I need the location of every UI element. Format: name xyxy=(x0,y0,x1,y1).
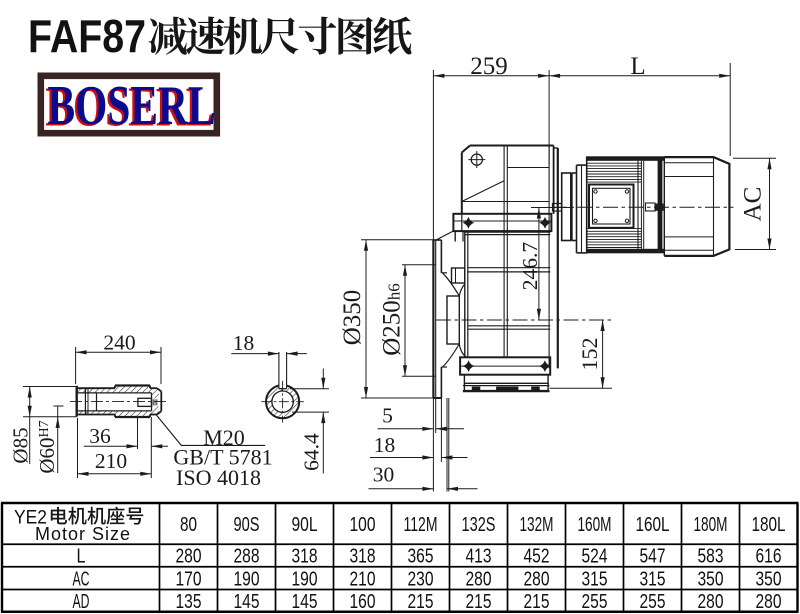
svg-text:215: 215 xyxy=(466,591,492,613)
svg-text:524: 524 xyxy=(582,546,608,568)
svg-text:ISO 4018: ISO 4018 xyxy=(176,465,261,490)
svg-text:L: L xyxy=(77,546,86,568)
svg-text:AD: AD xyxy=(73,591,90,613)
svg-text:5: 5 xyxy=(382,404,393,428)
svg-text:Motor Size: Motor Size xyxy=(35,524,131,544)
svg-text:145: 145 xyxy=(234,591,260,613)
svg-text:215: 215 xyxy=(408,591,434,613)
svg-text:30: 30 xyxy=(373,463,395,487)
svg-text:350: 350 xyxy=(756,568,782,590)
svg-text:210: 210 xyxy=(95,449,127,473)
svg-text:160L: 160L xyxy=(636,514,670,536)
svg-text:152: 152 xyxy=(577,338,602,371)
svg-text:255: 255 xyxy=(582,591,608,613)
svg-text:259: 259 xyxy=(470,53,508,80)
svg-text:547: 547 xyxy=(640,546,666,568)
svg-text:280: 280 xyxy=(698,591,724,613)
svg-text:280: 280 xyxy=(756,591,782,613)
svg-text:350: 350 xyxy=(698,568,724,590)
svg-text:64.4: 64.4 xyxy=(300,433,324,471)
svg-text:Ø350: Ø350 xyxy=(339,290,366,346)
svg-text:210: 210 xyxy=(350,568,376,590)
svg-text:18: 18 xyxy=(374,433,396,457)
svg-text:132M: 132M xyxy=(520,514,554,536)
svg-text:583: 583 xyxy=(698,546,724,568)
svg-text:Ø85: Ø85 xyxy=(9,427,33,463)
svg-text:180L: 180L xyxy=(752,514,786,536)
svg-text:170: 170 xyxy=(176,568,202,590)
svg-text:132S: 132S xyxy=(462,514,496,536)
svg-text:215: 215 xyxy=(524,591,550,613)
svg-text:230: 230 xyxy=(408,568,434,590)
svg-text:413: 413 xyxy=(466,546,492,568)
svg-text:280: 280 xyxy=(466,568,492,590)
svg-text:135: 135 xyxy=(176,591,202,613)
svg-text:160: 160 xyxy=(350,591,376,613)
svg-text:255: 255 xyxy=(640,591,666,613)
svg-text:160M: 160M xyxy=(578,514,612,536)
svg-text:365: 365 xyxy=(408,546,434,568)
svg-text:18: 18 xyxy=(233,331,255,355)
svg-text:240: 240 xyxy=(103,331,135,355)
svg-text:318: 318 xyxy=(350,546,376,568)
svg-text:180M: 180M xyxy=(694,514,728,536)
svg-text:280: 280 xyxy=(524,568,550,590)
svg-text:246.7: 246.7 xyxy=(518,242,542,291)
svg-text:318: 318 xyxy=(292,546,318,568)
svg-text:100: 100 xyxy=(350,514,376,536)
svg-text:BOSERL: BOSERL xyxy=(48,75,216,137)
svg-text:L: L xyxy=(630,53,645,80)
svg-text:FAF87: FAF87 xyxy=(28,10,146,62)
svg-text:90L: 90L xyxy=(292,514,318,536)
svg-text:315: 315 xyxy=(640,568,666,590)
svg-text:AC: AC xyxy=(73,568,90,590)
svg-text:145: 145 xyxy=(292,591,318,613)
svg-text:452: 452 xyxy=(524,546,550,568)
svg-text:190: 190 xyxy=(292,568,318,590)
svg-text:288: 288 xyxy=(234,546,260,568)
svg-text:112M: 112M xyxy=(404,514,438,536)
svg-text:280: 280 xyxy=(176,546,202,568)
svg-text:616: 616 xyxy=(756,546,782,568)
svg-text:315: 315 xyxy=(582,568,608,590)
svg-text:AC: AC xyxy=(740,187,767,222)
svg-text:80: 80 xyxy=(180,514,197,536)
svg-text:36: 36 xyxy=(89,424,111,448)
svg-text:190: 190 xyxy=(234,568,260,590)
svg-text:90S: 90S xyxy=(234,514,260,536)
